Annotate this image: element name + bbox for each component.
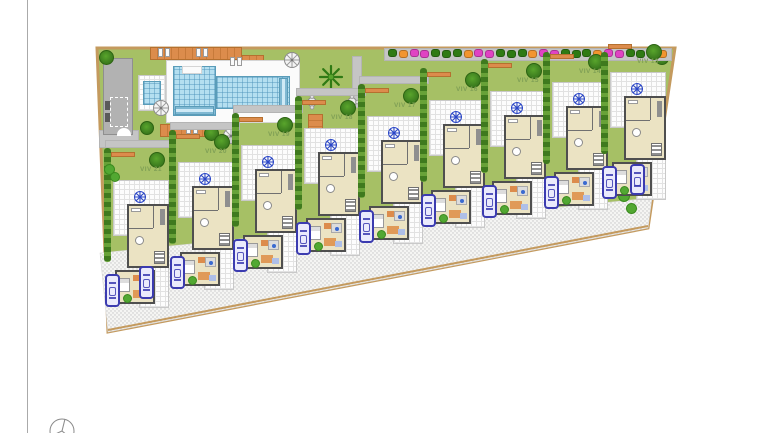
tree-icon (99, 50, 114, 65)
planter-steps (550, 54, 576, 74)
planter-steps (302, 100, 328, 120)
hedge-strip (169, 130, 176, 244)
stairs (651, 143, 662, 156)
sunbed-icon (196, 48, 210, 59)
car-icon (233, 239, 248, 272)
terrace-emblem-icon (630, 82, 644, 96)
sofa-icon (196, 190, 206, 194)
bath-fixture (460, 213, 467, 219)
garage-unit (306, 218, 346, 252)
bush-icon (620, 186, 629, 195)
flower-icon (420, 50, 429, 58)
stairs (282, 216, 293, 229)
hedge-strip (295, 96, 302, 210)
stairs (531, 162, 542, 175)
villa-plot: VIV 18 (304, 124, 362, 256)
car-icon (482, 185, 497, 218)
garden-path (359, 76, 429, 84)
stairs (408, 187, 419, 200)
garage-unit (369, 206, 409, 240)
flower-icon (442, 50, 451, 58)
terrace-emblem-icon (387, 126, 401, 140)
bush-icon (123, 294, 132, 303)
table-icon (135, 236, 144, 245)
villa-plot: VIV 15 (490, 87, 548, 219)
bed-icon (119, 278, 130, 292)
bush-icon (439, 214, 448, 223)
bathroom (456, 195, 467, 205)
bush-icon (251, 259, 260, 268)
garage-unit (492, 181, 532, 215)
palm-tree-icon (318, 64, 344, 90)
villa-plot: VIV 19 (241, 141, 299, 273)
bathroom (517, 186, 528, 196)
tree-icon (140, 121, 154, 135)
sofa-icon (447, 128, 457, 132)
bath-fixture (398, 229, 405, 235)
flower-icon (399, 50, 408, 58)
sunbed-icon (158, 48, 172, 59)
house-plan (255, 169, 297, 233)
flower-icon (518, 49, 527, 57)
umbrella-icon (152, 99, 170, 117)
planter-steps (488, 63, 514, 83)
bath-fixture (583, 195, 590, 201)
planter-steps (176, 134, 202, 154)
flower-icon (464, 50, 473, 58)
terrace-emblem-icon (198, 172, 212, 186)
pool-house (103, 58, 133, 135)
kitchen-counter (657, 101, 662, 117)
bathroom (579, 177, 590, 187)
hedge-strip (358, 84, 365, 198)
sofa-icon (628, 100, 638, 104)
hedge-strip (481, 59, 488, 173)
garden-path (296, 88, 366, 96)
pool-steps (175, 106, 214, 115)
table-icon (263, 201, 272, 210)
bathroom (205, 257, 216, 267)
table-icon (451, 156, 460, 165)
flower-icon (496, 49, 505, 57)
bush-icon (500, 205, 509, 214)
bush-icon (626, 203, 637, 214)
bath-fixture (335, 241, 342, 247)
house-plan (504, 115, 546, 179)
bed-icon (247, 243, 258, 257)
car-icon (139, 266, 154, 299)
bath-fixture (272, 258, 279, 264)
car-icon (105, 274, 120, 307)
planter-steps (427, 72, 453, 92)
garage-unit (243, 235, 283, 269)
bed-icon (184, 260, 195, 274)
flower-icon (636, 50, 645, 58)
car-icon (296, 222, 311, 255)
bath-fixture (521, 204, 528, 210)
bush-icon (314, 242, 323, 251)
house-plan (192, 186, 234, 250)
villa-plot: VIV 16 (429, 96, 487, 228)
house-plan (381, 140, 423, 204)
house-plan (443, 124, 485, 188)
garage-unit (180, 252, 220, 286)
sofa-icon (259, 173, 269, 177)
pool-ledge (182, 66, 202, 74)
bathroom (268, 240, 279, 250)
terrace-emblem-icon (324, 138, 338, 152)
table-icon (574, 138, 583, 147)
stairs (154, 251, 165, 264)
hedge-strip (601, 52, 608, 154)
villa-label: VIV 21 (140, 166, 170, 175)
bathroom (394, 211, 405, 221)
villa-plot: VIV 21 (113, 176, 171, 308)
kitchen-counter (225, 191, 230, 207)
villa-label: VIV 20 (205, 148, 235, 157)
flower-icon (485, 50, 494, 58)
villa-label: VIV 13 (637, 58, 667, 67)
hedge-strip (420, 68, 427, 182)
garden-path (170, 122, 240, 130)
planter-steps (365, 88, 391, 108)
table-icon (632, 128, 641, 137)
terrace-emblem-icon (510, 101, 524, 115)
flower-icon (410, 49, 419, 57)
kitchen-counter (414, 145, 419, 161)
frame-line (27, 0, 28, 433)
garden-path (105, 140, 175, 148)
table-icon (389, 172, 398, 181)
bush-icon (377, 230, 386, 239)
car-icon (170, 256, 185, 289)
sunbed-icon (230, 57, 244, 68)
villa-plot: VIV 17 (367, 112, 425, 244)
garage-unit (554, 172, 594, 206)
villa-plot: VIV 13 (610, 68, 668, 200)
car-icon (421, 194, 436, 227)
flower-icon (431, 49, 440, 57)
bath-fixture (209, 275, 216, 281)
car-icon (544, 176, 559, 209)
villa-label: VIV 18 (331, 114, 361, 123)
bathroom (331, 223, 342, 233)
bed-icon (558, 180, 569, 194)
stairs (470, 171, 481, 184)
site-plan-drawing: VIV 21 VIV 20 VIV 19 VIV 18 VIV 17 (0, 0, 770, 433)
stairs (345, 199, 356, 212)
hedge-strip (543, 52, 550, 164)
bush-icon (188, 276, 197, 285)
kitchen-counter (537, 120, 542, 136)
house-plan (624, 96, 666, 160)
terrace-emblem-icon (572, 92, 586, 106)
pool-steps-side (279, 78, 288, 107)
garden-path (233, 105, 303, 113)
bed-icon (373, 214, 384, 228)
house-plan (127, 204, 169, 268)
flower-icon (388, 49, 397, 57)
sofa-icon (385, 144, 395, 148)
car-icon (630, 164, 645, 195)
bed-icon (310, 226, 321, 240)
villa-plot: VIV 20 (178, 158, 236, 290)
kitchen-counter (160, 209, 165, 225)
flower-icon (474, 49, 483, 57)
bed-icon (496, 189, 507, 203)
kitchen-counter (288, 174, 293, 190)
stairs (219, 233, 230, 246)
bed-icon (616, 170, 627, 184)
sofa-icon (322, 156, 332, 160)
villa-label: VIV 19 (268, 131, 298, 140)
north-arrow-icon (47, 416, 77, 433)
car-icon (359, 210, 374, 243)
flower-icon (453, 49, 462, 57)
table-icon (512, 147, 521, 156)
umbrella-icon (283, 51, 301, 69)
terrace-emblem-icon (261, 155, 275, 169)
bed-icon (435, 198, 446, 212)
bush-icon (110, 172, 120, 182)
table-icon (326, 184, 335, 193)
flower-icon (507, 50, 516, 58)
planter-steps (239, 117, 265, 137)
terrace-emblem-icon (133, 190, 147, 204)
garage-unit (431, 190, 471, 224)
sofa-icon (508, 119, 518, 123)
bush-icon (562, 196, 571, 205)
planter-steps (608, 44, 634, 64)
car-icon (602, 166, 617, 199)
house-plan (318, 152, 360, 216)
kitchen-counter (351, 157, 356, 173)
terrace-emblem-icon (449, 110, 463, 124)
stairs (593, 153, 604, 166)
flower-icon (528, 50, 537, 58)
hedge-strip (232, 113, 239, 227)
sofa-icon (570, 110, 580, 114)
sofa-icon (131, 208, 141, 212)
table-icon (200, 218, 209, 227)
